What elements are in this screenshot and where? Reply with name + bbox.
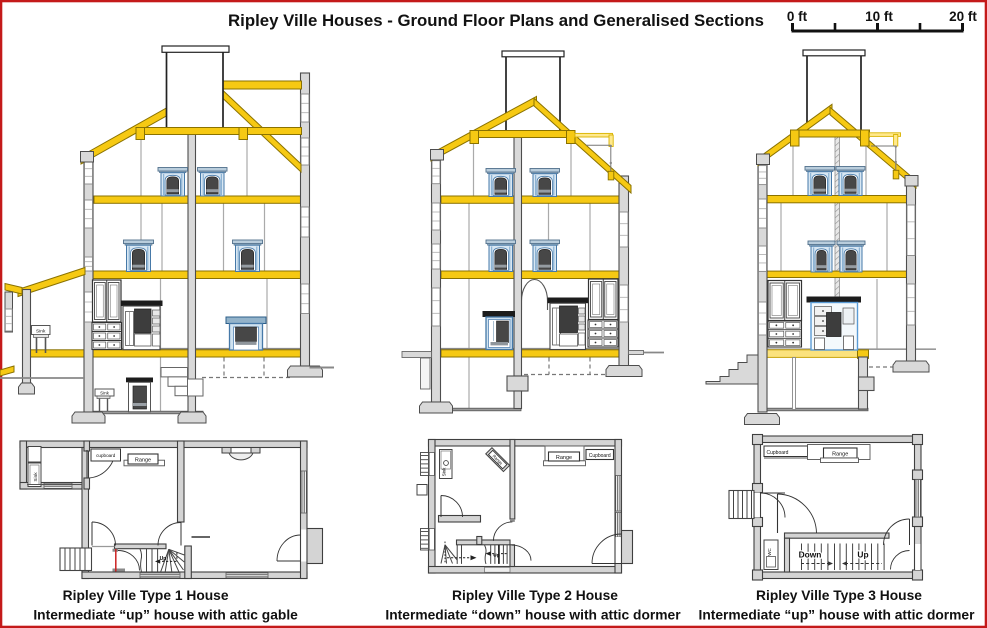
svg-text:Range: Range (135, 457, 151, 463)
svg-text:Cupboard: Cupboard (767, 450, 789, 456)
svg-text:Intermediate “up” house with a: Intermediate “up” house with attic gable (33, 608, 298, 623)
svg-text:WC: WC (767, 548, 772, 556)
svg-text:Intermediate “down” house with: Intermediate “down” house with attic dor… (385, 608, 681, 623)
svg-text:Up: Up (160, 556, 167, 562)
svg-text:Sink: Sink (33, 472, 39, 482)
svg-text:0 ft: 0 ft (787, 9, 808, 24)
svg-text:Ripley Ville Houses - Ground F: Ripley Ville Houses - Ground Floor Plans… (228, 11, 764, 30)
svg-text:Cupboard: Cupboard (589, 453, 611, 459)
svg-text:Down: Down (799, 550, 822, 560)
svg-text:20 ft: 20 ft (949, 9, 977, 24)
svg-text:Sink: Sink (100, 390, 110, 395)
svg-text:Range: Range (832, 452, 848, 458)
svg-text:Sink: Sink (442, 467, 447, 477)
svg-text:Sink: Sink (36, 328, 46, 334)
svg-text:cupboard: cupboard (96, 453, 116, 458)
svg-text:Ripley Ville Type 1 House: Ripley Ville Type 1 House (63, 588, 229, 603)
svg-text:Up: Up (857, 550, 868, 560)
svg-text:Intermediate “up” house with a: Intermediate “up” house with attic dorme… (699, 608, 976, 623)
svg-text:Up: Up (493, 553, 499, 559)
svg-text:Ripley Ville Type 3 House: Ripley Ville Type 3 House (756, 588, 922, 603)
svg-text:10 ft: 10 ft (865, 9, 893, 24)
svg-text:Range: Range (556, 455, 572, 461)
svg-text:Ripley Ville Type 2 House: Ripley Ville Type 2 House (452, 588, 618, 603)
